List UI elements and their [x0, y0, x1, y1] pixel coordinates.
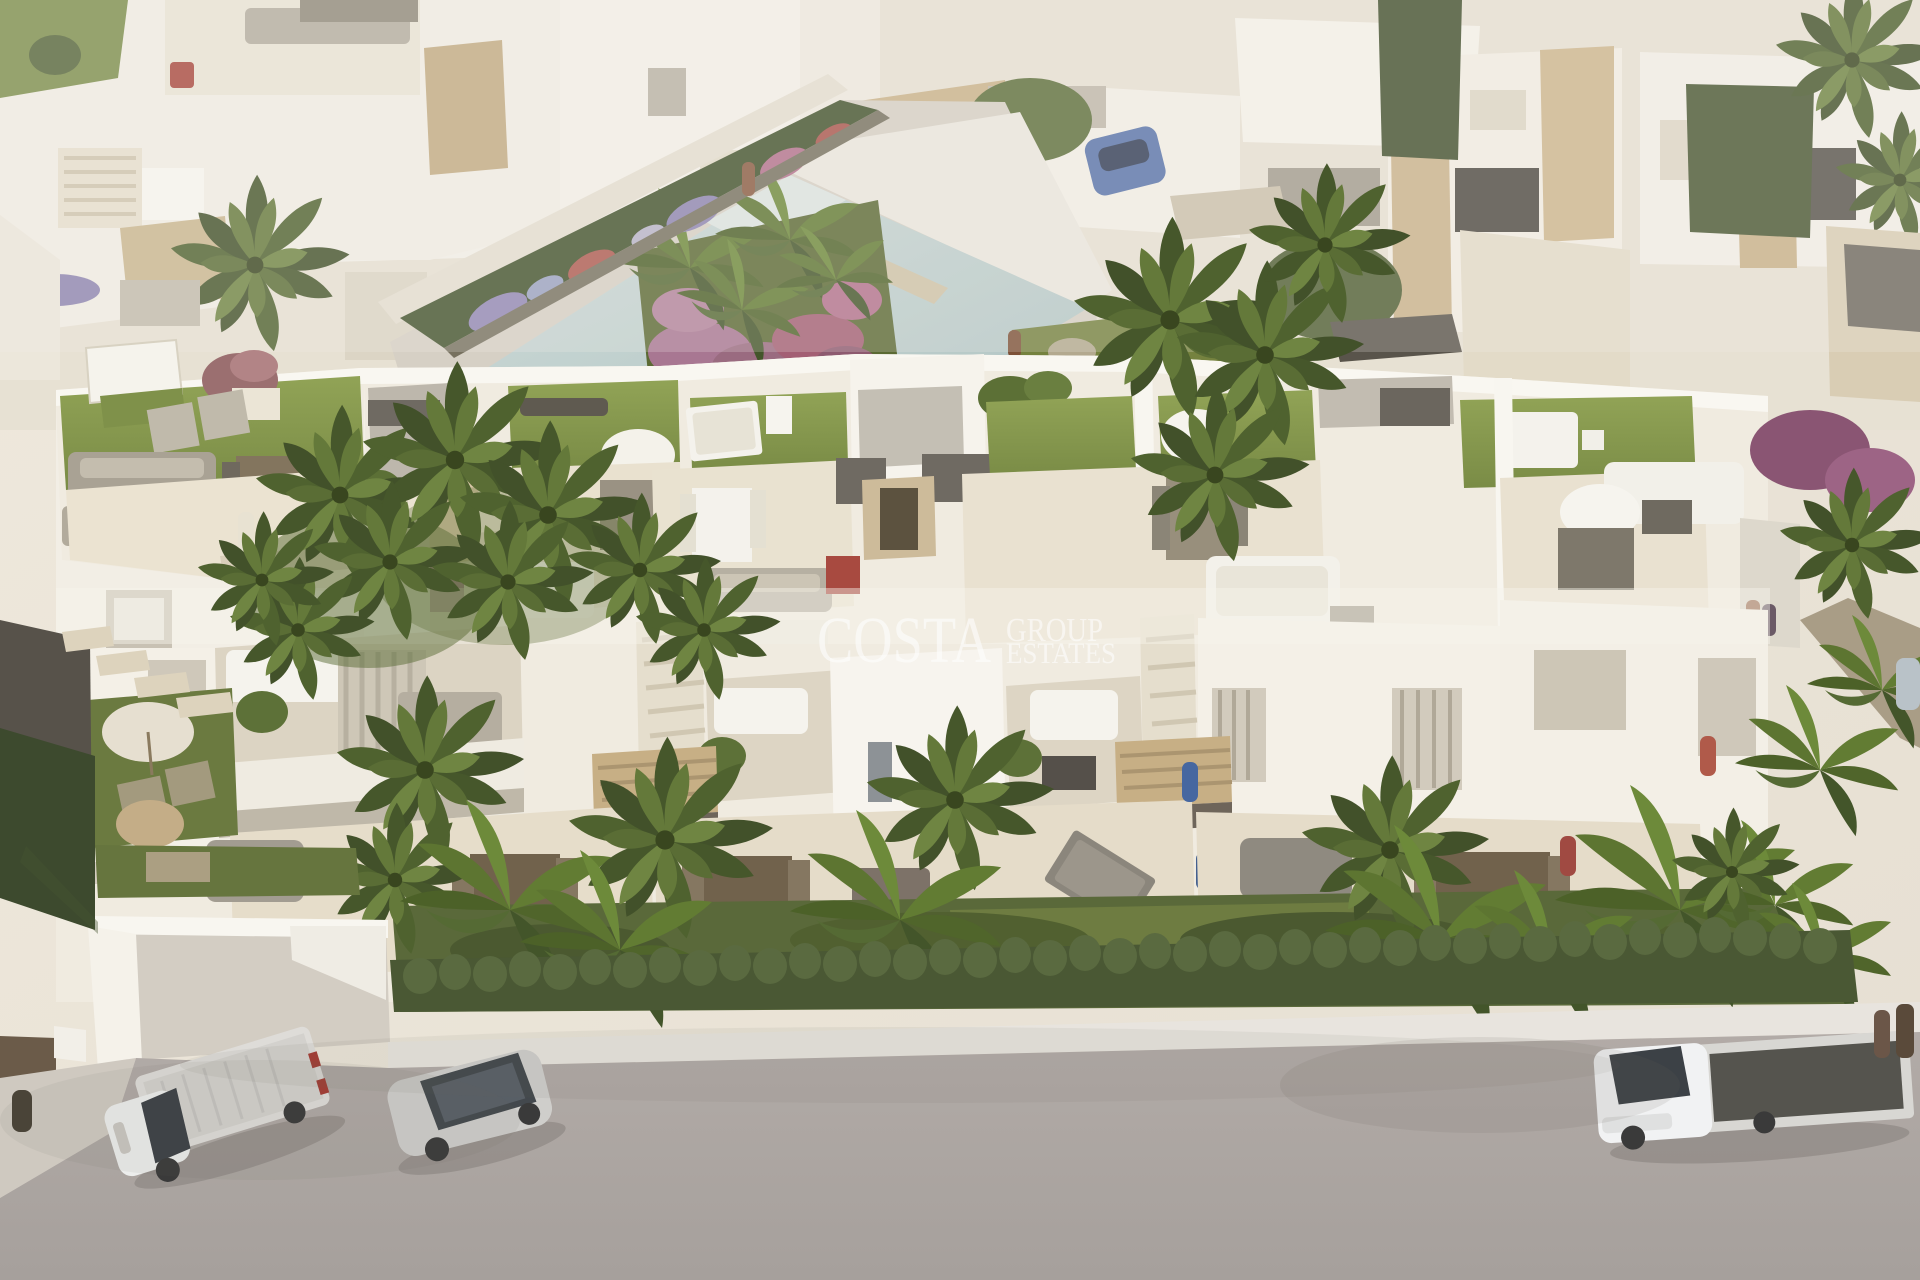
svg-text:COSTA: COSTA	[817, 604, 991, 677]
svg-text:ESTATES: ESTATES	[1006, 637, 1116, 670]
